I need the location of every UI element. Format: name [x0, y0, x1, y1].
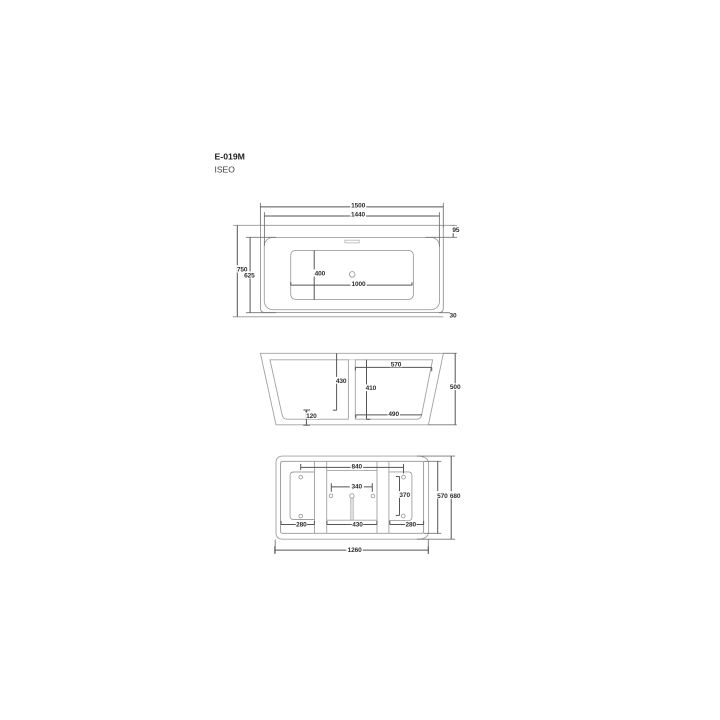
- svg-text:625: 625: [244, 273, 255, 280]
- svg-text:680: 680: [450, 493, 461, 500]
- svg-text:1500: 1500: [351, 203, 366, 210]
- svg-text:95: 95: [452, 227, 460, 234]
- svg-text:1440: 1440: [351, 212, 366, 219]
- svg-text:ISEO: ISEO: [215, 165, 236, 175]
- svg-text:1260: 1260: [348, 547, 363, 554]
- svg-text:280: 280: [296, 521, 307, 528]
- svg-text:410: 410: [366, 385, 377, 392]
- svg-text:340: 340: [352, 483, 363, 490]
- svg-text:1000: 1000: [351, 281, 366, 288]
- svg-text:490: 490: [388, 411, 399, 418]
- svg-text:280: 280: [406, 521, 417, 528]
- svg-text:430: 430: [352, 521, 363, 528]
- svg-text:430: 430: [336, 378, 347, 385]
- svg-text:E-019M: E-019M: [215, 152, 245, 162]
- svg-text:500: 500: [450, 384, 461, 391]
- svg-text:370: 370: [399, 492, 410, 499]
- svg-text:570: 570: [437, 493, 448, 500]
- svg-text:570: 570: [391, 362, 402, 369]
- svg-text:30: 30: [449, 313, 457, 320]
- svg-text:120: 120: [306, 413, 317, 420]
- svg-text:840: 840: [352, 464, 363, 471]
- svg-text:400: 400: [315, 271, 326, 278]
